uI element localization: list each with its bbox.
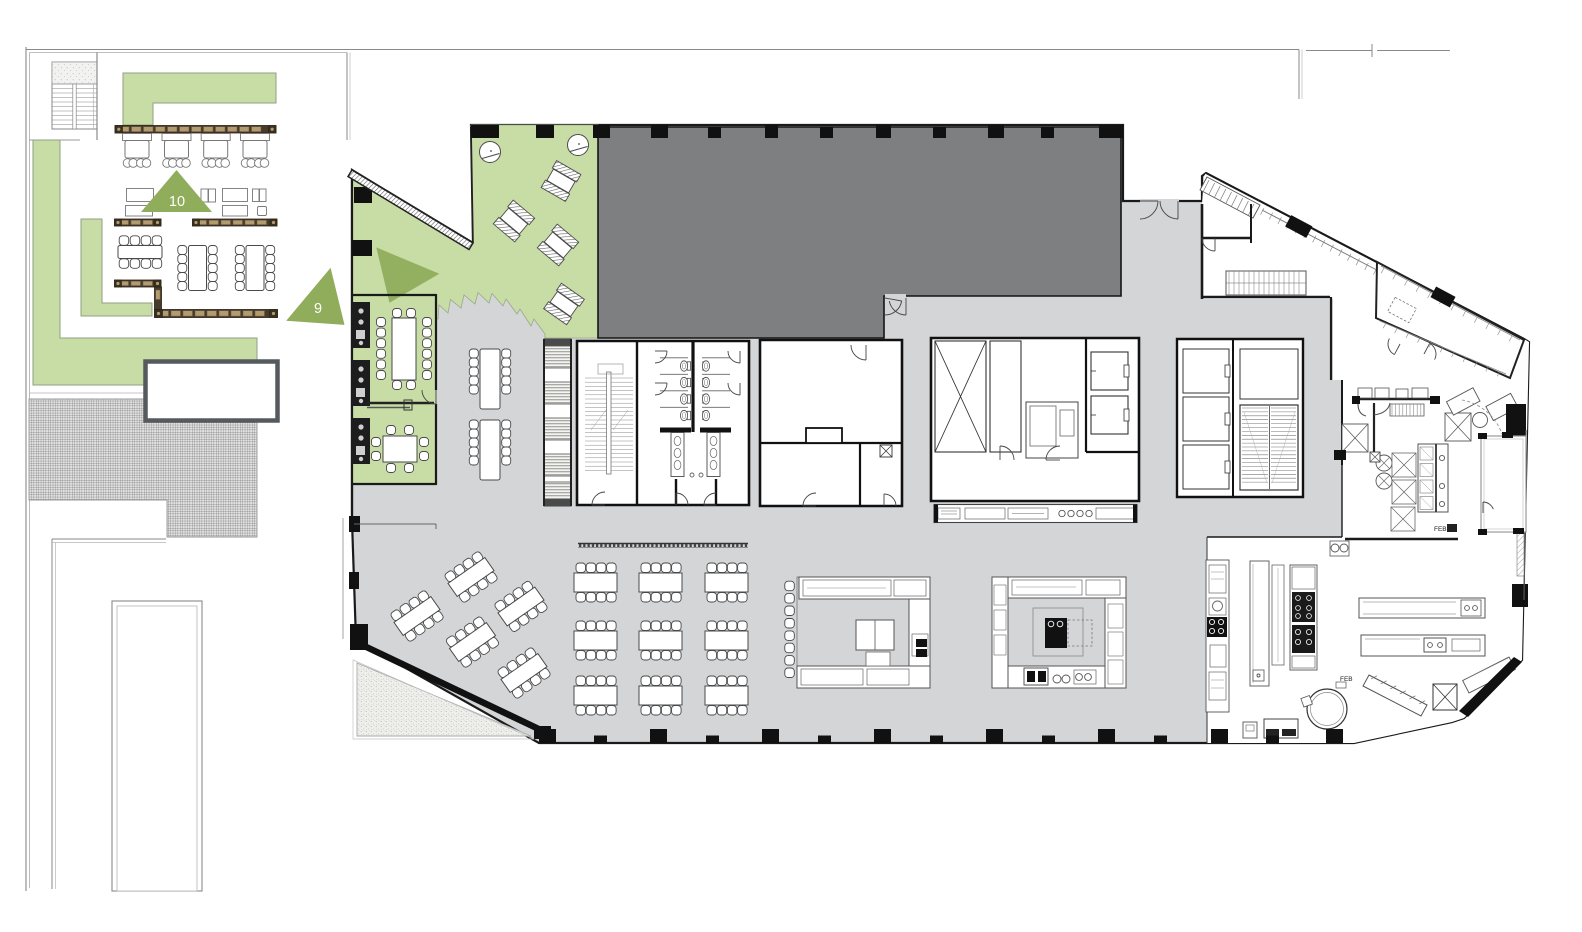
svg-text:10: 10 <box>169 194 185 210</box>
svg-text:9: 9 <box>314 301 322 317</box>
svg-text:FEB: FEB <box>1434 526 1447 533</box>
